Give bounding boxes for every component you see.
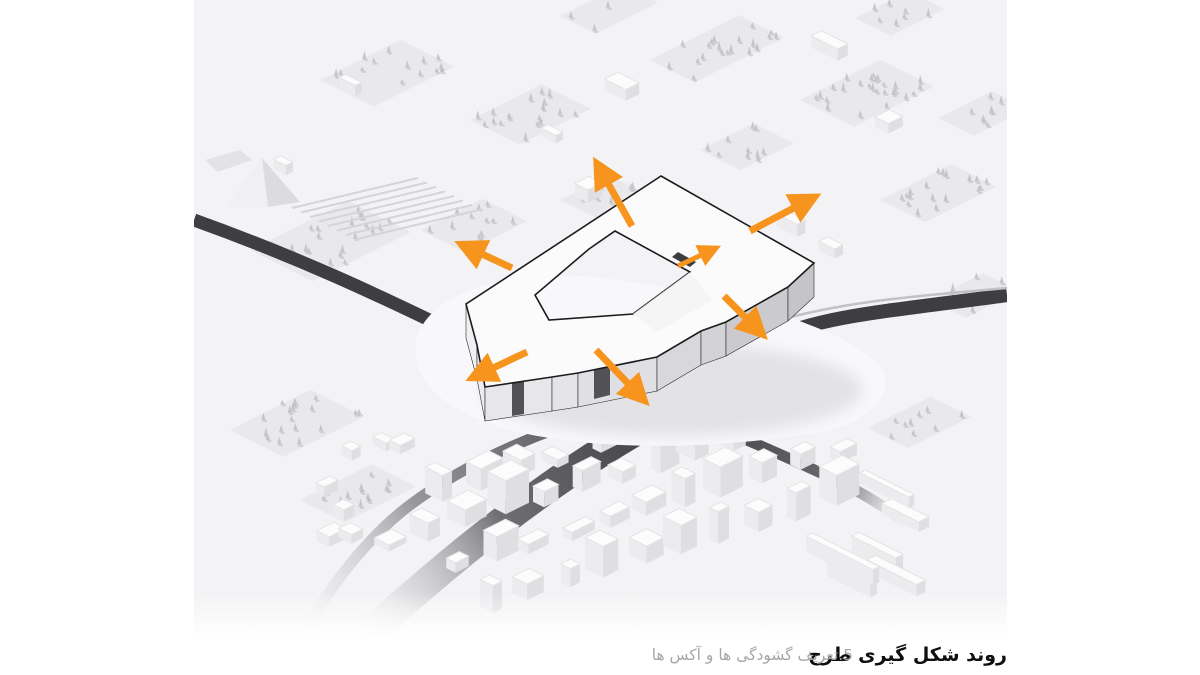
tree-shadow (893, 95, 898, 97)
tree-shadow (441, 72, 446, 74)
tree-shadow (903, 18, 908, 20)
tree-shadow (747, 158, 752, 160)
tree-shadow (975, 278, 980, 280)
tree-shadow (360, 490, 365, 492)
tree-shadow (990, 98, 995, 100)
tree-shadow (730, 52, 735, 54)
shape (442, 471, 452, 502)
tree-shadow (451, 228, 456, 230)
tree-shadow (883, 86, 888, 88)
tree-shadow (329, 264, 334, 266)
shape (710, 508, 719, 544)
tree-shadow (295, 430, 300, 432)
tree-shadow (879, 21, 884, 23)
tree-shadow (884, 94, 889, 96)
tree-shadow (361, 493, 366, 495)
tree-shadow (291, 420, 296, 422)
tree-shadow (347, 498, 352, 500)
tree-shadow (540, 124, 545, 126)
tree-shadow (935, 209, 940, 211)
tree-shadow (945, 201, 950, 203)
tree-shadow (486, 221, 491, 223)
tree-shadow (932, 200, 937, 202)
tree-shadow (1001, 283, 1006, 285)
caption-step-label: 5.تعریف گشودگی ها و آکس ها (652, 646, 853, 664)
tree-shadow (344, 264, 349, 266)
tree-shadow (895, 93, 900, 95)
tree-shadow (890, 438, 895, 440)
tree-shadow (294, 404, 299, 406)
tree-shadow (370, 476, 375, 478)
tree-shadow (917, 215, 922, 217)
tree-shadow (982, 122, 987, 124)
tree-shadow (986, 183, 991, 185)
tree-shadow (987, 126, 992, 128)
tree-shadow (512, 223, 517, 225)
tree-shadow (991, 113, 996, 115)
tree-shadow (925, 187, 930, 189)
tree-shadow (927, 412, 932, 414)
tree-shadow (594, 31, 599, 33)
tree-shadow (749, 54, 754, 56)
tree-shadow (895, 25, 900, 27)
tree-shadow (886, 107, 891, 109)
tree-shadow (541, 93, 546, 95)
tree-shadow (945, 177, 950, 179)
tree-shadow (280, 432, 285, 434)
tree-shadow (437, 59, 442, 61)
tree-shadow (530, 101, 535, 103)
tree-shadow (320, 431, 325, 433)
axonometric-render (194, 0, 1007, 638)
tree-shadow (525, 140, 530, 142)
tree-shadow (918, 416, 923, 418)
tree-shadow (708, 47, 713, 49)
site-model-svg (194, 0, 1007, 638)
tree-shadow (770, 34, 775, 36)
tree-shadow (423, 62, 428, 64)
tree-shadow (360, 507, 365, 509)
tree-shadow (842, 90, 847, 92)
tree-shadow (976, 182, 981, 184)
tree-shadow (559, 115, 564, 117)
tree-shadow (305, 252, 310, 254)
tree-shadow (872, 90, 877, 92)
tree-shadow (909, 193, 914, 195)
tree-shadow (342, 252, 347, 254)
tree-shadow (870, 80, 875, 82)
tree-shadow (752, 129, 757, 131)
tree-shadow (927, 16, 932, 18)
tree-shadow (942, 175, 947, 177)
tree-shadow (543, 104, 548, 106)
tree-shadow (281, 404, 286, 406)
tree-shadow (971, 113, 976, 115)
tree-shadow (323, 500, 328, 502)
tree-shadow (440, 69, 445, 71)
tree-shadow (364, 59, 369, 61)
tree-shadow (570, 17, 575, 19)
render-fade (194, 592, 1007, 638)
tree-shadow (632, 189, 637, 191)
tree-shadow (768, 38, 773, 40)
shape (787, 488, 796, 521)
tree-shadow (379, 229, 384, 231)
tree-shadow (289, 413, 294, 415)
tree-shadow (757, 161, 762, 163)
tree-shadow (668, 68, 673, 70)
tree-shadow (610, 203, 615, 205)
tree-shadow (361, 71, 366, 73)
tree-shadow (340, 257, 345, 259)
tree-shadow (388, 52, 393, 54)
tree-shadow (901, 200, 906, 202)
tree-shadow (904, 426, 909, 428)
tree-shadow (913, 95, 918, 97)
tree-shadow (539, 120, 544, 122)
tree-shadow (738, 42, 743, 44)
tree-shadow (267, 440, 272, 442)
figure-page: روند شکل گیری طرح 5.تعریف گشودگی ها و آک… (0, 0, 1200, 675)
tree-shadow (747, 152, 752, 154)
tree-shadow (419, 75, 424, 77)
tree-shadow (751, 27, 756, 29)
tree-shadow (480, 235, 485, 237)
tree-shadow (713, 42, 718, 44)
tree-shadow (895, 422, 900, 424)
tree-shadow (492, 222, 497, 224)
tree-shadow (937, 173, 942, 175)
tree-shadow (318, 238, 323, 240)
tree-shadow (607, 8, 612, 10)
tree-shadow (355, 415, 360, 417)
tree-shadow (597, 200, 602, 202)
tree-shadow (682, 46, 687, 48)
shape (718, 506, 729, 544)
tree-shadow (919, 83, 924, 85)
tree-shadow (910, 425, 915, 427)
tree-shadow (815, 99, 820, 101)
tree-shadow (934, 430, 939, 432)
tree-shadow (367, 499, 372, 501)
tree-shadow (907, 205, 912, 207)
tree-shadow (905, 99, 910, 101)
tree-shadow (310, 229, 315, 231)
tree-shadow (721, 54, 726, 56)
tree-shadow (263, 420, 268, 422)
tree-shadow (978, 192, 983, 194)
tree-shadow (702, 59, 707, 61)
tree-shadow (315, 400, 320, 402)
tree-shadow (386, 490, 391, 492)
tree-shadow (827, 110, 832, 112)
tree-shadow (972, 312, 977, 314)
tree-shadow (368, 502, 373, 504)
tree-shadow (574, 115, 579, 117)
tree-shadow (775, 38, 780, 40)
tree-shadow (311, 410, 316, 412)
tree-shadow (826, 101, 831, 103)
shape (685, 474, 695, 508)
tree-shadow (407, 68, 412, 70)
tree-shadow (493, 123, 498, 125)
tree-shadow (752, 46, 757, 48)
tree-shadow (819, 98, 824, 100)
tree-shadow (278, 444, 283, 446)
tree-shadow (373, 63, 378, 65)
tree-shadow (470, 217, 475, 219)
tree-shadow (874, 10, 879, 12)
tree-shadow (508, 119, 513, 121)
tree-shadow (292, 410, 297, 412)
tree-shadow (436, 72, 441, 74)
tree-shadow (727, 141, 732, 143)
tree-shadow (982, 120, 987, 122)
tree-shadow (549, 97, 554, 99)
tree-shadow (293, 407, 298, 409)
tree-shadow (317, 230, 322, 232)
tree-shadow (718, 156, 723, 158)
tree-shadow (876, 92, 881, 94)
tree-shadow (500, 124, 505, 126)
tree-shadow (388, 484, 393, 486)
tree-shadow (429, 232, 434, 234)
tree-shadow (912, 435, 917, 437)
tree-shadow (832, 89, 837, 91)
tree-shadow (859, 85, 864, 87)
tree-shadow (401, 83, 406, 85)
tree-shadow (859, 117, 864, 119)
tree-shadow (477, 118, 482, 120)
tree-shadow (484, 126, 489, 128)
tree-shadow (905, 13, 910, 15)
tree-shadow (909, 198, 914, 200)
tree-shadow (961, 417, 966, 419)
tree-shadow (481, 243, 486, 245)
tree-shadow (492, 114, 497, 116)
tree-shadow (763, 154, 768, 156)
tree-shadow (877, 80, 882, 82)
tree-shadow (298, 445, 303, 447)
tree-shadow (889, 5, 894, 7)
tree-shadow (487, 206, 492, 208)
tree-shadow (1000, 103, 1005, 105)
tree-shadow (846, 79, 851, 81)
tree-shadow (969, 181, 974, 183)
tree-shadow (756, 50, 761, 52)
tree-shadow (697, 63, 702, 65)
tree-shadow (707, 150, 712, 152)
tree-shadow (693, 79, 698, 81)
tree-shadow (542, 110, 547, 112)
tree-shadow (919, 89, 924, 91)
